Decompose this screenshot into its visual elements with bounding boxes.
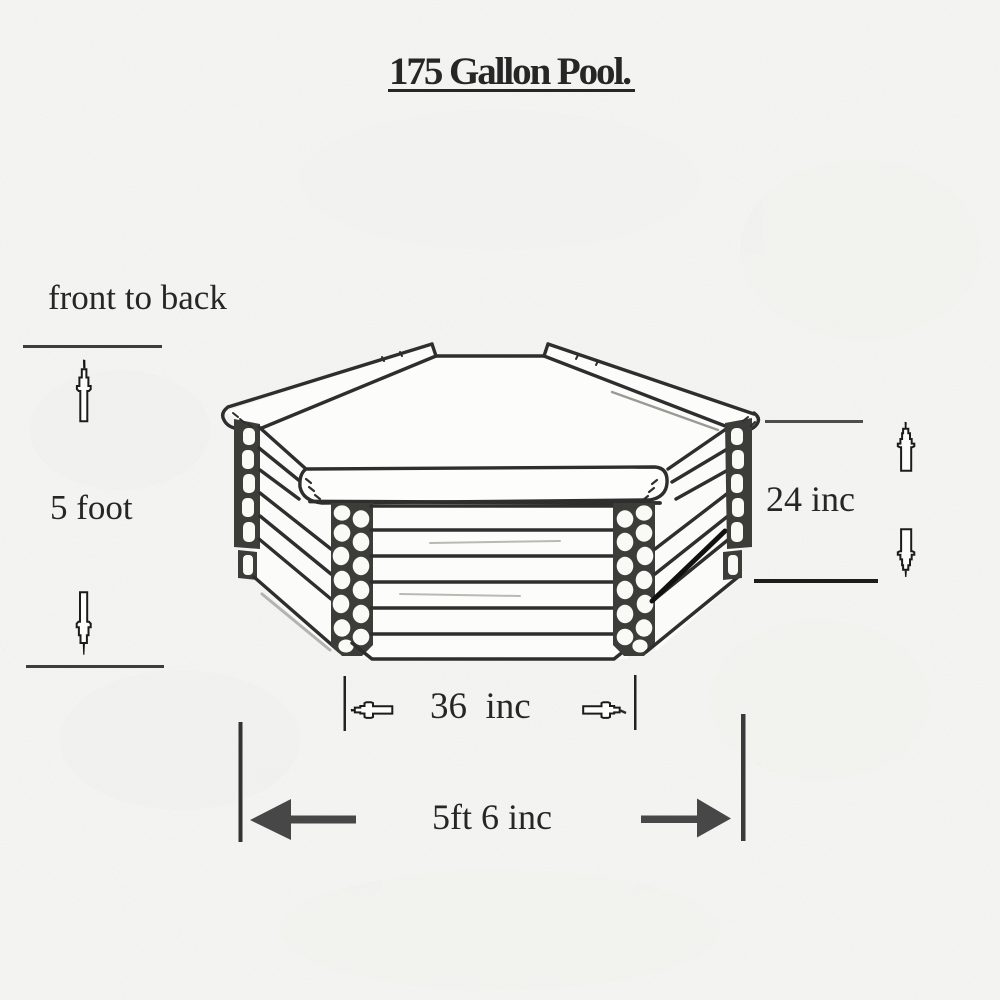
svg-text:5ft 6 inc: 5ft 6 inc	[432, 797, 552, 837]
svg-text:5 foot: 5 foot	[50, 488, 133, 527]
svg-text:175 Gallon Pool.: 175 Gallon Pool.	[389, 50, 632, 93]
svg-text:front to back: front to back	[48, 278, 227, 317]
svg-text:24 inc: 24 inc	[766, 479, 855, 519]
svg-text:36 inc: 36 inc	[430, 686, 531, 727]
